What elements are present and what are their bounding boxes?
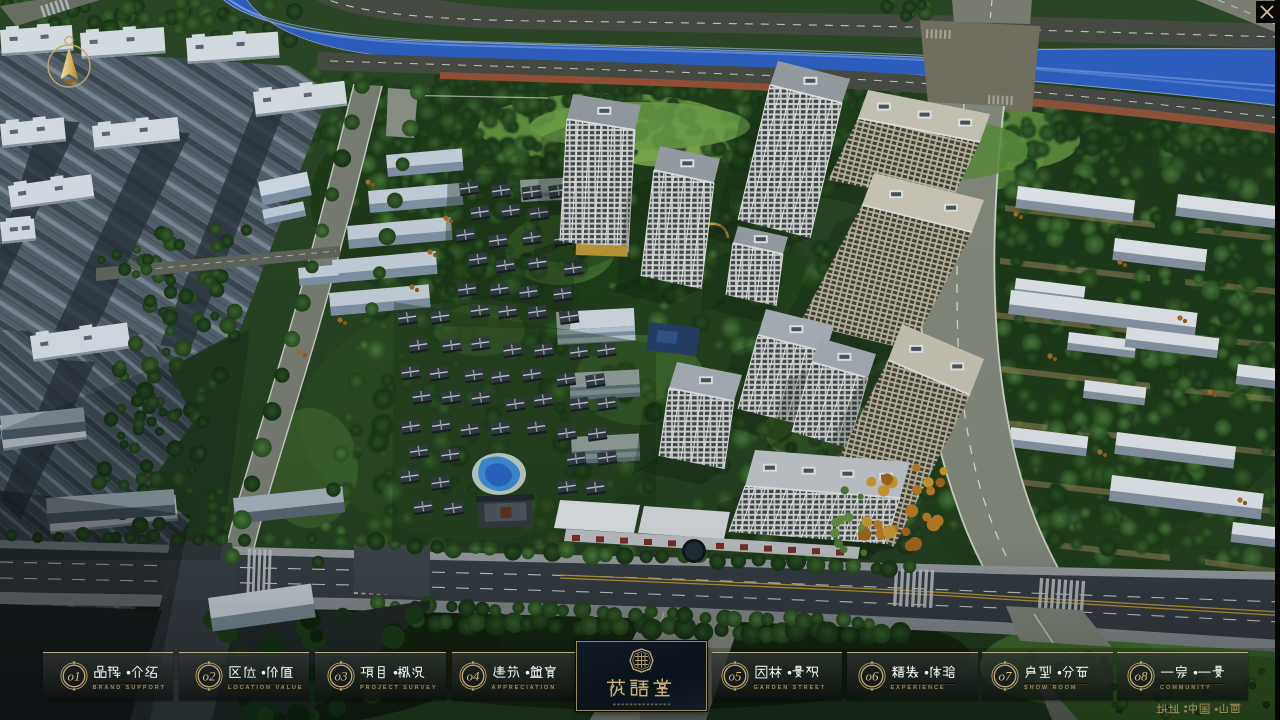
svg-text:o1: o1	[67, 669, 80, 684]
svg-text:o8: o8	[1135, 669, 1149, 684]
svg-text:o4: o4	[466, 669, 480, 684]
svg-text:o7: o7	[999, 669, 1013, 684]
svg-text:o2: o2	[203, 669, 217, 684]
svg-text:o3: o3	[335, 669, 349, 684]
svg-text:o6: o6	[865, 669, 879, 684]
svg-text:o5: o5	[728, 669, 742, 684]
